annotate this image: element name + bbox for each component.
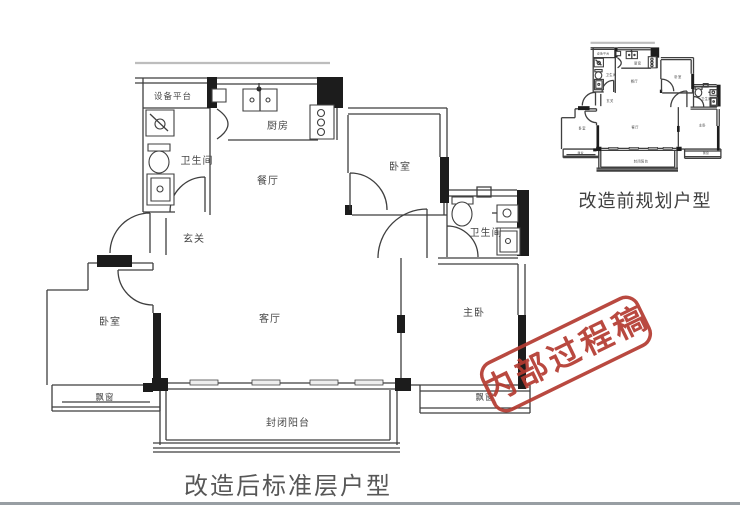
room-label-entrance: 玄关 xyxy=(183,232,205,245)
room-label-bathroom2: 卫生间 xyxy=(470,226,503,239)
room-label-equipment-platform: 设备平台 xyxy=(154,91,192,101)
floor-plan-main: 设备平台 卫生间 厨房 餐厅 卧室 玄关 客厅 卧室 主卧 卫生间 飘窗 飘窗 … xyxy=(47,63,530,452)
bottom-divider xyxy=(0,502,740,505)
kitchen-sink-icon xyxy=(212,83,277,111)
main-plan-caption: 改造后标准层户型 xyxy=(184,473,392,500)
room-label-bedroom-left: 卧室 xyxy=(99,315,121,328)
washer-icon xyxy=(147,174,174,205)
toilet-icon xyxy=(148,144,170,173)
draft-stamp: 内部过程稿 xyxy=(474,291,659,417)
bathroom2-sink-icon xyxy=(492,205,518,222)
toilet-icon xyxy=(452,197,473,226)
door-arcs xyxy=(110,109,478,305)
fixtures-group xyxy=(146,83,520,255)
stove-icon xyxy=(310,105,334,139)
room-label-bedroom-top: 卧室 xyxy=(389,160,411,173)
floor-plan-mini xyxy=(562,43,721,171)
room-label-bathroom1: 卫生间 xyxy=(181,154,214,167)
floor-plan: 设备平台 卫生间 厨房 餐厅 卧室 玄关 客厅 卧室 主卧 卫生间 飘窗 飘窗 … xyxy=(0,0,740,510)
floorplan-page: 设备平台 卫生间 厨房 餐厅 卧室 玄关 客厅 卧室 主卧 卫生间 飘窗 飘窗 … xyxy=(0,0,740,510)
room-label-living: 客厅 xyxy=(259,312,281,325)
room-label-dining: 餐厅 xyxy=(257,174,279,187)
room-label-master-bedroom: 主卧 xyxy=(463,306,485,319)
room-label-balcony: 封闭阳台 xyxy=(266,416,310,429)
room-label-bay-window-left: 飘窗 xyxy=(95,392,114,402)
bathroom1-sink-icon xyxy=(146,110,174,136)
mini-plan-caption: 改造前规划户型 xyxy=(579,191,712,211)
room-label-kitchen: 厨房 xyxy=(267,119,289,132)
